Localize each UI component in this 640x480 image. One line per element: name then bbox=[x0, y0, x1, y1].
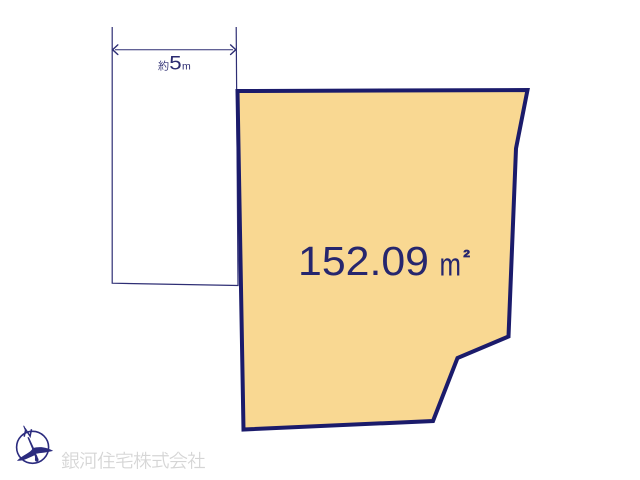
svg-text:m: m bbox=[182, 60, 191, 72]
svg-text:2: 2 bbox=[463, 249, 470, 260]
svg-text:m: m bbox=[440, 246, 462, 282]
svg-text:5: 5 bbox=[169, 54, 181, 75]
svg-text:152.09: 152.09 bbox=[298, 238, 429, 284]
